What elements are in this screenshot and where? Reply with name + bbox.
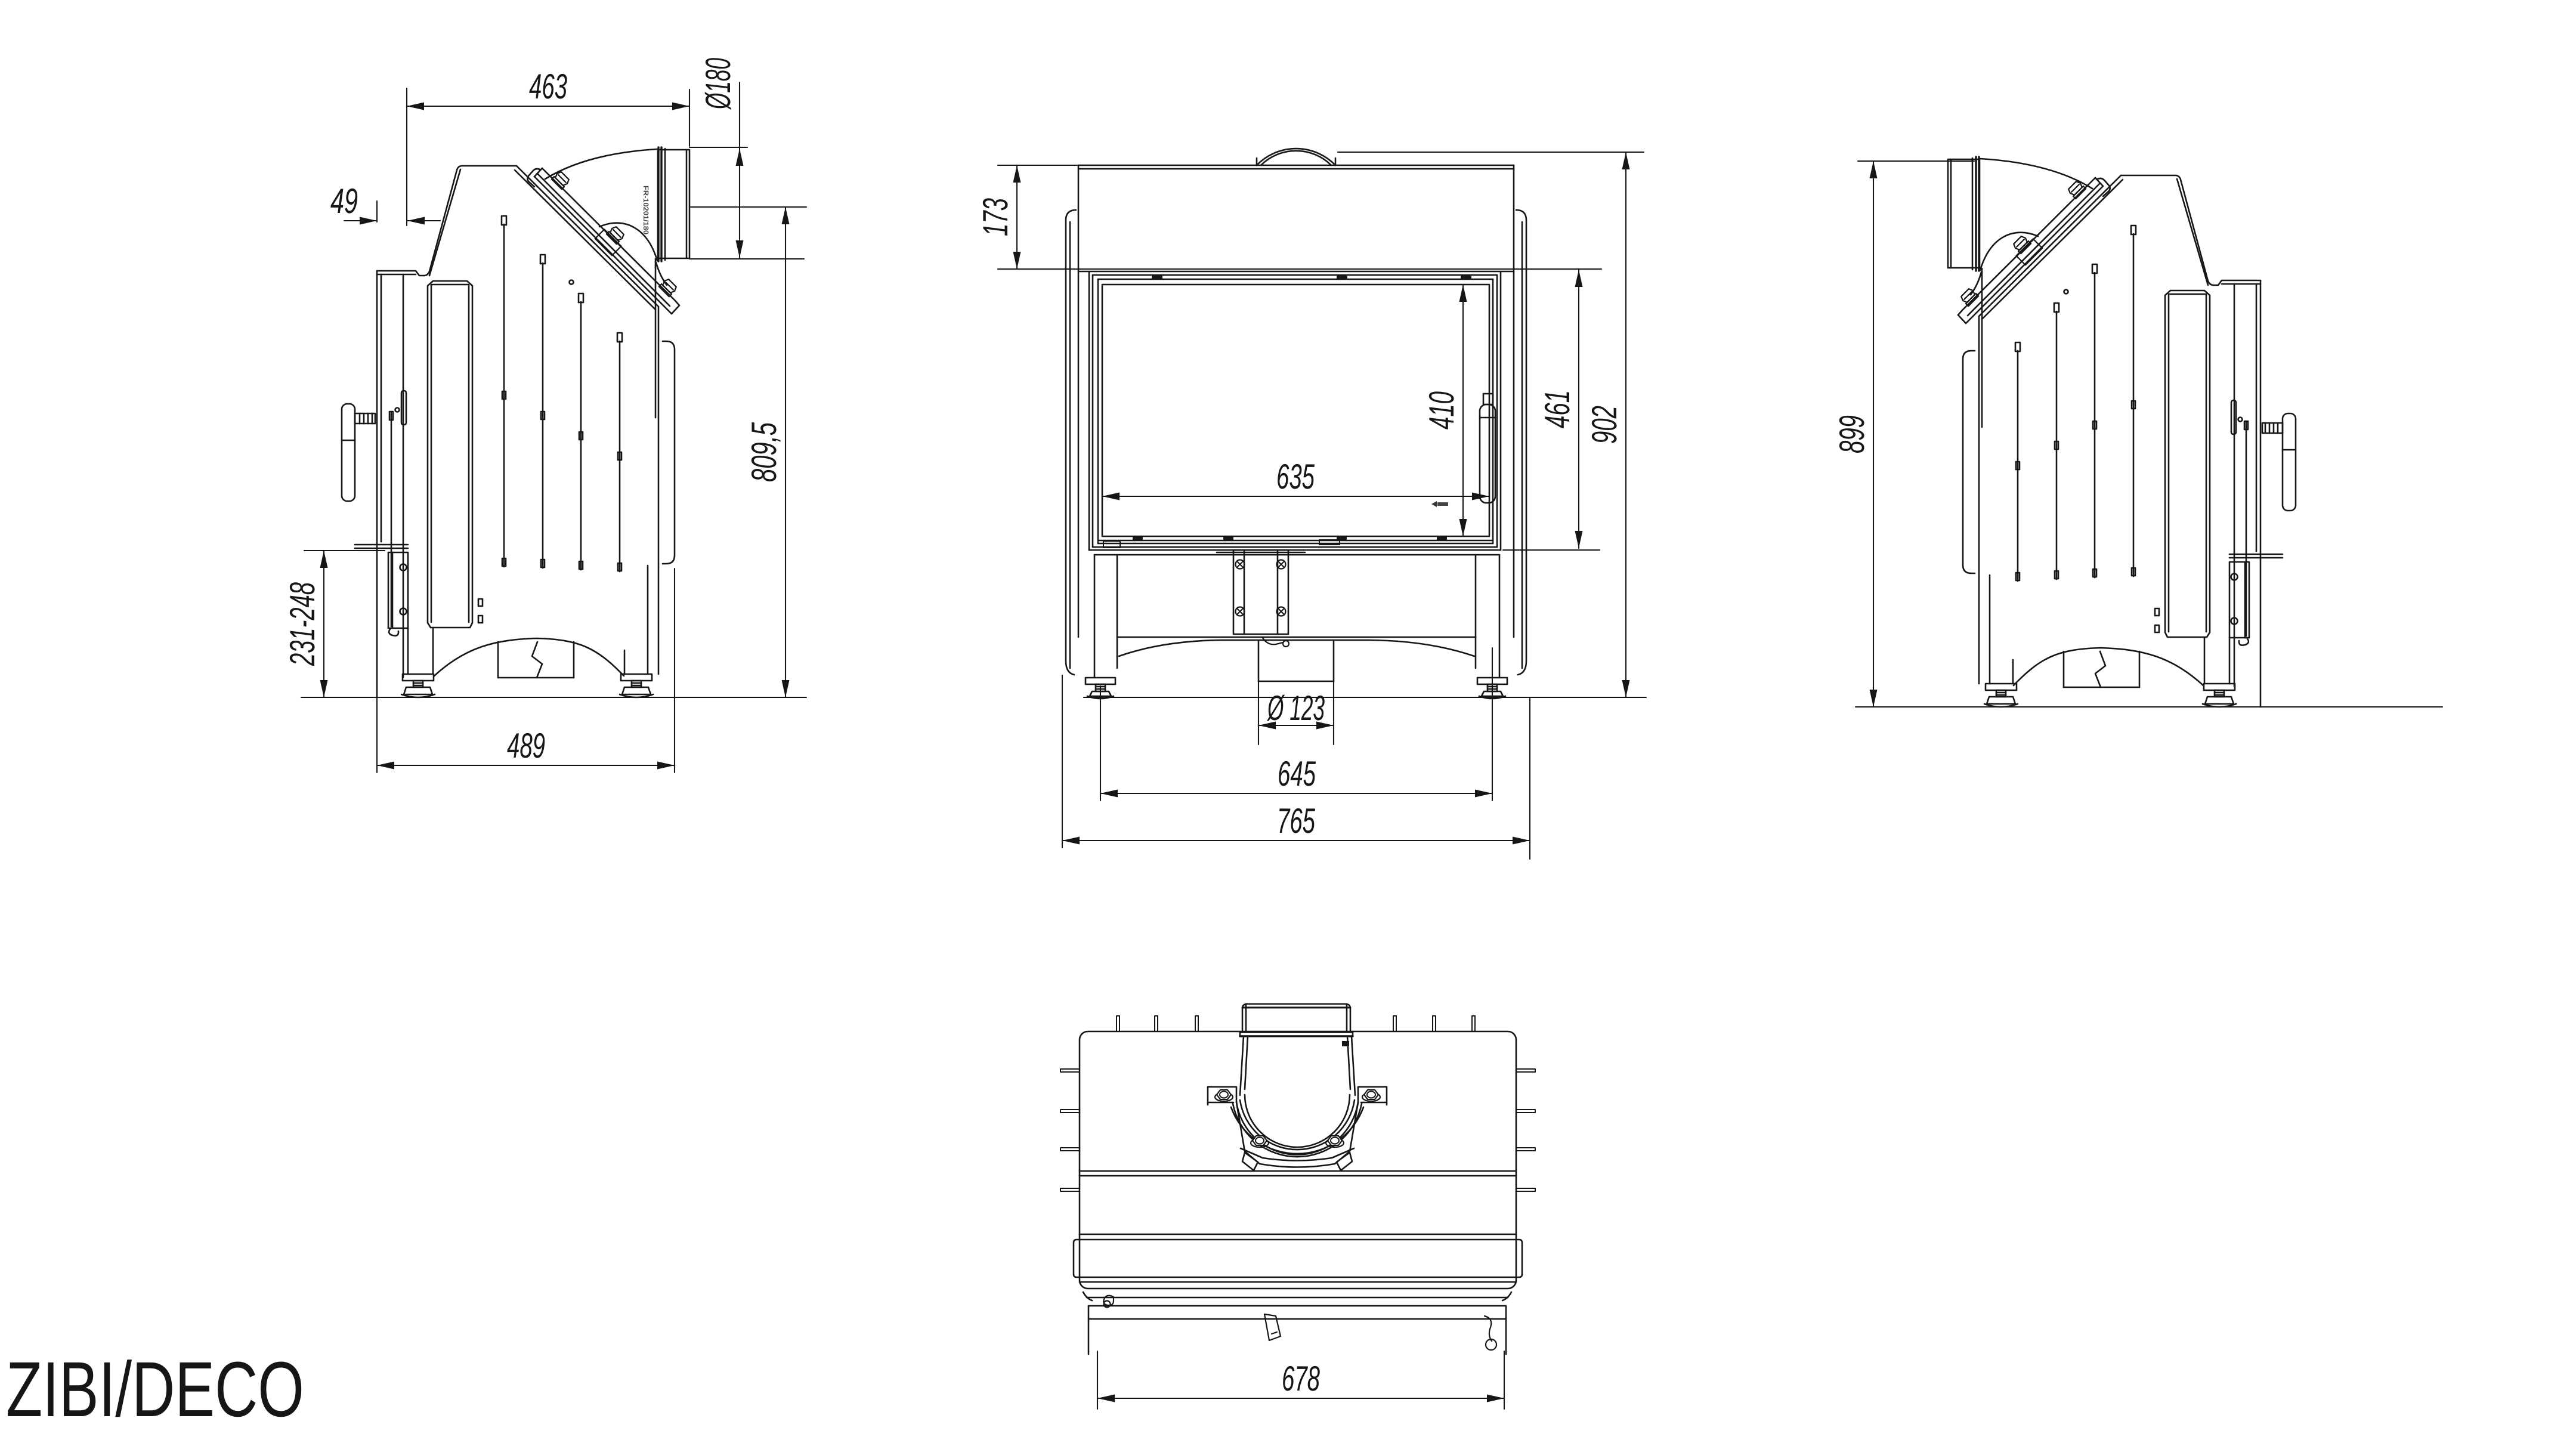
svg-text:410: 410 xyxy=(1422,391,1461,430)
svg-text:49: 49 xyxy=(330,181,358,221)
svg-text:635: 635 xyxy=(1276,457,1315,496)
svg-text:173: 173 xyxy=(976,198,1015,236)
svg-text:678: 678 xyxy=(1282,1359,1320,1398)
svg-text:463: 463 xyxy=(529,67,567,106)
svg-text:489: 489 xyxy=(507,726,545,765)
svg-text:Ø 123: Ø 123 xyxy=(1267,688,1325,728)
svg-text:FR-10201/180: FR-10201/180 xyxy=(642,186,650,234)
svg-text:ZIBI/DECO: ZIBI/DECO xyxy=(6,1345,304,1433)
svg-text:231-248: 231-248 xyxy=(283,582,322,666)
svg-text:Ø180: Ø180 xyxy=(698,58,738,110)
svg-text:765: 765 xyxy=(1277,801,1315,841)
svg-text:461: 461 xyxy=(1538,390,1577,428)
svg-text:809,5: 809,5 xyxy=(744,422,784,482)
svg-text:645: 645 xyxy=(1278,754,1316,793)
svg-text:902: 902 xyxy=(1585,406,1624,444)
svg-text:899: 899 xyxy=(1832,415,1872,453)
